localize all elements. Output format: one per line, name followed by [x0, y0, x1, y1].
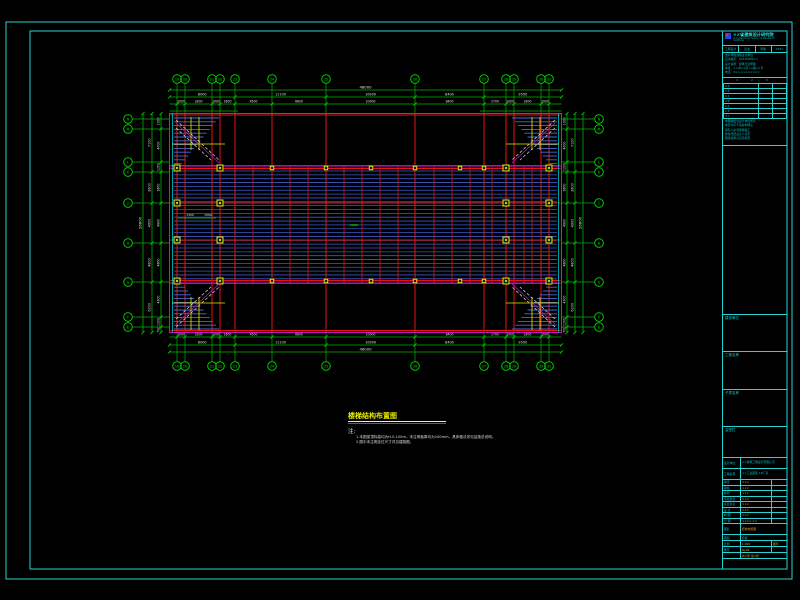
dim-text: 24: [270, 77, 274, 81]
field-extra: [771, 491, 787, 496]
certificate-row: 工程设计证书甲级A151: [723, 46, 787, 53]
field-extra: [771, 502, 787, 507]
company-logo-icon: [725, 33, 731, 39]
column-core: [176, 202, 178, 204]
dim-text: 700: [563, 327, 567, 333]
structural-plan-drawing: 1350150010003300100018004500660010900840…: [0, 0, 800, 600]
note-item-2: 2.图中未注明定位尺寸详见建施图。: [356, 440, 578, 445]
dim-text: 4900: [571, 219, 575, 228]
dim-text: 8400: [446, 333, 454, 337]
notes-block: 楼梯结构布置图 注: 1.本图梁顶标高均为H-0.100m，未注明板厚均为100…: [348, 413, 578, 444]
titleblock-header: ××省建筑设计研究院 Architectural Design & Resear…: [723, 31, 787, 46]
column-marker: [413, 279, 417, 283]
dim-text: 4500: [250, 333, 258, 337]
dim-text: 28: [504, 364, 508, 368]
dim-text: 26800: [138, 216, 143, 229]
field-value: ×××: [741, 508, 771, 513]
dim-text: 19: [175, 364, 179, 368]
company-subtitle: Architectural Design & Research Institut…: [733, 38, 786, 44]
field-extra: [771, 519, 787, 524]
field-label: 审核: [723, 486, 741, 491]
dim-text: 1000: [506, 100, 514, 104]
dim-text: 8000: [198, 341, 207, 345]
section-label: 子项名称: [723, 390, 787, 396]
dim-text: 8000: [198, 93, 207, 97]
cert-cell: A151: [772, 46, 787, 52]
dim-text: 27: [482, 364, 486, 368]
revision-table: 1 2 3 4 61 49 42 64 41 44 72 1: [723, 78, 787, 119]
column-marker: [458, 279, 462, 283]
field-value: 1:100: [741, 541, 771, 546]
cad-canvas: 1350150010003300100018004500660010900840…: [0, 0, 800, 600]
dim-text: 1000: [177, 333, 185, 337]
field-label: 设 计: [723, 508, 741, 513]
column-core: [548, 280, 550, 282]
dim-text: L: [127, 160, 129, 164]
dim-text: 4900: [148, 219, 152, 228]
field-value: ×××: [741, 480, 771, 485]
field-label: [723, 553, 741, 558]
dim-text: 1000: [506, 333, 514, 337]
field-value: 共×张 第×张: [741, 553, 787, 558]
field-label: 工程名称: [723, 469, 741, 479]
field-label: 图号: [723, 547, 741, 552]
column-core: [548, 202, 550, 204]
dim-text: 25: [324, 77, 328, 81]
column-core: [505, 167, 507, 169]
dim-text: 30: [539, 77, 543, 81]
section-owner: 建设单位: [723, 315, 787, 352]
dim-text: 10900: [365, 93, 376, 97]
title-underline-magenta: [348, 423, 446, 424]
dim-text: 1900: [563, 117, 567, 125]
dim-text: 1900: [157, 117, 161, 125]
dim-text: 3800: [157, 184, 161, 192]
inner-border-frame: [30, 31, 787, 569]
field-extra: [771, 497, 787, 502]
dim-text: 10900: [366, 100, 376, 104]
dim-text: 8400: [445, 93, 454, 97]
dim-text: 8400: [445, 341, 454, 345]
field-label: 图名: [723, 524, 741, 534]
section-signoff: 会签栏: [723, 427, 787, 458]
dim-text: 23: [233, 364, 237, 368]
dim-text: 1350: [186, 213, 194, 217]
field-extra: [771, 547, 787, 552]
field-label: 日 期: [723, 519, 741, 524]
dim-text: 8400: [446, 100, 454, 104]
section-label: 工程名称: [723, 352, 787, 358]
cert-cell: 甲级: [756, 46, 772, 52]
dim-text: 48000: [359, 347, 372, 352]
dim-text: E: [598, 325, 600, 329]
dim-text: 4800: [571, 258, 575, 267]
dim-text: 30: [539, 364, 543, 368]
dim-text: 7100: [571, 138, 575, 147]
dim-text: 20: [183, 77, 187, 81]
dim-text: 1200: [563, 163, 567, 171]
dim-text: 6200: [148, 303, 152, 312]
section-label: 建设单位: [723, 315, 787, 321]
titleblock-row: 图名结构布置图: [723, 524, 787, 535]
dim-text: 9500: [518, 341, 527, 345]
column-marker: [413, 166, 417, 170]
dim-text: 2700: [491, 100, 499, 104]
dim-text: 26: [413, 77, 417, 81]
field-extra: [771, 508, 787, 513]
dim-text: 6600: [295, 100, 303, 104]
signature-table: 设计单位××建筑工程设计有限公司工程名称××工业园区 1#厂房审定×××审核××…: [723, 458, 787, 568]
dim-text: 1800: [224, 100, 232, 104]
dim-text: 29: [512, 77, 516, 81]
dim-text: 22: [218, 77, 222, 81]
dim-text: K: [598, 170, 601, 174]
dim-text: 4800: [157, 259, 161, 267]
column-marker: [482, 166, 486, 170]
dim-text: 29: [512, 364, 516, 368]
field-label: 制 图: [723, 513, 741, 518]
dim-text: 4000: [157, 142, 161, 150]
dim-text: 20: [183, 364, 187, 368]
dim-text: F: [127, 315, 129, 319]
field-extra: [771, 480, 787, 485]
dim-text: 3800: [571, 183, 575, 192]
cert-cell: 证书: [739, 46, 755, 52]
field-extra: 图号: [771, 541, 787, 546]
dim-text: 31: [547, 364, 551, 368]
column-core: [548, 167, 550, 169]
dim-text: 11100: [275, 93, 286, 97]
dim-text: 1200: [157, 318, 161, 326]
column-marker: [369, 166, 373, 170]
field-label: 校对: [723, 491, 741, 496]
dim-text: M: [598, 127, 601, 131]
column-marker: [270, 279, 274, 283]
dim-text: 22: [218, 364, 222, 368]
column-core: [505, 280, 507, 282]
field-value: 结施: [741, 535, 787, 540]
dim-text: 3300: [524, 333, 532, 337]
column-marker: [324, 279, 328, 283]
field-value: ××××.××: [741, 519, 771, 524]
dim-text: 6200: [571, 303, 575, 312]
dim-text: 3800: [148, 183, 152, 192]
field-label: 专业负责: [723, 497, 741, 502]
title-underline-white: [348, 421, 446, 422]
dim-text: L: [598, 160, 600, 164]
field-extra: [771, 513, 787, 518]
field-label: 项目负责: [723, 502, 741, 507]
notes-label: 注:: [348, 427, 578, 435]
dim-text: 26: [413, 364, 417, 368]
dim-text: G: [598, 280, 601, 284]
column-marker: [482, 279, 486, 283]
dim-text: 1500: [204, 213, 212, 217]
field-value: ×××: [741, 502, 771, 507]
copyright-notes: 本图版权归设计单位所有未经许可不得复制转让承包人必须按图施工修改须经设计人签字图…: [723, 119, 787, 146]
dim-text: 4800: [563, 259, 567, 267]
dim-text: 4800: [148, 258, 152, 267]
dim-text: 4300: [157, 296, 161, 304]
qualification-info: 国家甲级勘察设计单位证书编号：A1510000××设计资质：建筑行业甲级地址：×…: [723, 53, 787, 78]
title-block: ××省建筑设计研究院 Architectural Design & Resear…: [722, 31, 787, 569]
field-label: 设计单位: [723, 458, 741, 468]
column-core: [219, 167, 221, 169]
dim-text: 9500: [518, 93, 527, 97]
dim-text: 27: [482, 77, 486, 81]
info-line: 电话：0××-××××××××: [723, 70, 787, 74]
column-core: [505, 239, 507, 241]
dim-text: 2700: [491, 333, 499, 337]
dim-text: E: [127, 325, 129, 329]
dim-text: J: [598, 201, 600, 205]
dim-text: 10900: [365, 341, 376, 345]
column-core: [548, 239, 550, 241]
titleblock-row: 工程名称××工业园区 1#厂房: [723, 469, 787, 480]
column-core: [219, 239, 221, 241]
field-value: ×××: [741, 497, 771, 502]
dim-text: H: [127, 241, 130, 245]
cert-cell: 工程设计: [723, 46, 739, 52]
empty-section: [723, 146, 787, 315]
dim-text: 1000: [212, 333, 220, 337]
field-value: ××建筑工程设计有限公司: [741, 458, 787, 468]
slab-outline: [170, 114, 562, 333]
dim-text: 48000: [359, 85, 372, 90]
column-core: [176, 280, 178, 282]
column-marker: [369, 279, 373, 283]
dim-text: 6600: [295, 333, 303, 337]
field-label: 比例: [723, 541, 741, 546]
titleblock-row: 设计单位××建筑工程设计有限公司: [723, 458, 787, 469]
dim-text: 25: [324, 364, 328, 368]
field-value: ×××: [741, 486, 771, 491]
field-value: GJ-02: [741, 547, 771, 552]
dim-text: 24: [270, 364, 274, 368]
dim-text: 1000: [212, 100, 220, 104]
outer-border-frame: [6, 22, 792, 579]
dim-text: K: [127, 170, 130, 174]
titleblock-row: 共×张 第×张: [723, 553, 787, 559]
field-value: ×××: [741, 513, 771, 518]
dim-text: J: [127, 201, 129, 205]
dim-text: 3300: [195, 333, 203, 337]
section-label: 会签栏: [723, 427, 787, 433]
column-marker: [270, 166, 274, 170]
dim-text: 1800: [224, 333, 232, 337]
section-project: 工程名称: [723, 352, 787, 390]
dim-text: 7100: [148, 138, 152, 147]
field-label: 图别: [723, 535, 741, 540]
dim-text: 4900: [157, 219, 161, 227]
column-core: [176, 167, 178, 169]
dim-text: 19: [175, 77, 179, 81]
dim-text: 1200: [157, 163, 161, 171]
field-value: ××工业园区 1#厂房: [741, 469, 787, 479]
dim-text: 31: [547, 77, 551, 81]
dim-text: G: [127, 280, 130, 284]
dim-text: 3300: [195, 100, 203, 104]
drawing-title: 楼梯结构布置图: [348, 413, 578, 420]
dim-text: 1200: [563, 318, 567, 326]
copyright-line: 图纸会审记录见附页: [723, 136, 787, 140]
dim-text: 3800: [563, 184, 567, 192]
dim-text: 23: [233, 77, 237, 81]
dim-text: 4500: [250, 100, 258, 104]
field-value: ×××: [741, 491, 771, 496]
dim-text: 4900: [563, 219, 567, 227]
column-core: [219, 202, 221, 204]
dim-text: N: [598, 117, 601, 121]
dim-text: 3300: [524, 100, 532, 104]
dim-text: 10900: [366, 333, 376, 337]
column-marker: [458, 166, 462, 170]
dim-text: 26800: [578, 216, 583, 229]
dim-text: 1000: [541, 333, 549, 337]
dim-text: 11100: [275, 341, 286, 345]
section-subproject: 子项名称: [723, 390, 787, 427]
column-marker: [324, 166, 328, 170]
column-core: [176, 239, 178, 241]
dim-text: F: [598, 315, 600, 319]
dim-text: M: [127, 127, 130, 131]
column-core: [505, 202, 507, 204]
dim-text: 4000: [563, 142, 567, 150]
dim-text: 28: [504, 77, 508, 81]
dim-text: N: [127, 117, 130, 121]
field-value: 结构布置图: [741, 524, 787, 534]
dim-text: 4300: [563, 296, 567, 304]
dim-text: 21: [210, 77, 214, 81]
field-label: 审定: [723, 480, 741, 485]
dim-text: 1000: [177, 100, 185, 104]
dim-text: 1000: [541, 100, 549, 104]
column-core: [219, 280, 221, 282]
dim-text: 21: [210, 364, 214, 368]
dim-text: 700: [157, 327, 161, 333]
field-extra: [771, 486, 787, 491]
dim-text: H: [598, 241, 601, 245]
